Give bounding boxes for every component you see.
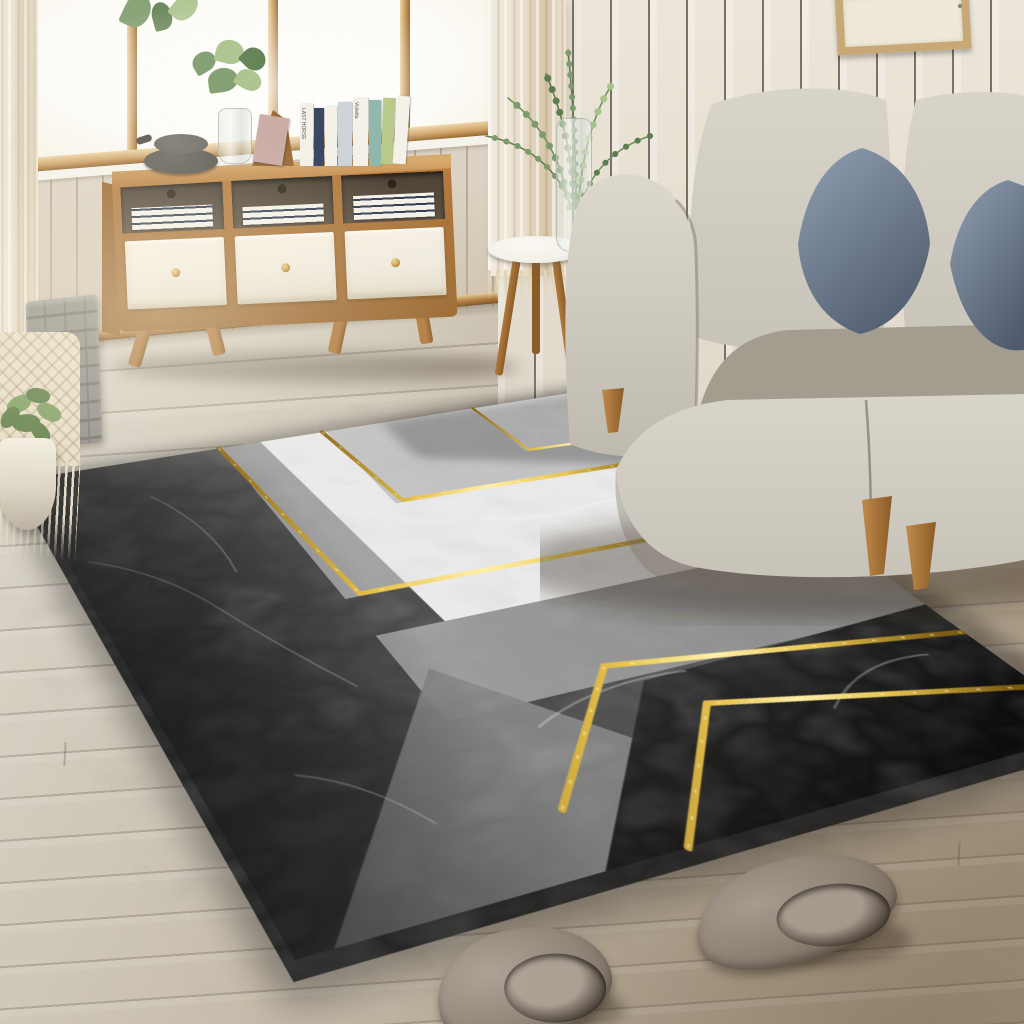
book-spine bbox=[393, 96, 411, 165]
sofa bbox=[540, 56, 1024, 626]
cubby bbox=[120, 181, 224, 234]
cabinet-drawers bbox=[125, 227, 447, 309]
basket-group bbox=[0, 292, 122, 582]
cable-hole bbox=[166, 189, 175, 198]
table-leg bbox=[495, 254, 522, 376]
drawer bbox=[345, 227, 447, 299]
hanging-leaf bbox=[167, 0, 203, 26]
bowl-handle bbox=[135, 134, 152, 146]
book-spine: LAST HORSE bbox=[300, 104, 313, 166]
book-spine-label: Violetta bbox=[353, 102, 358, 119]
book-stack bbox=[242, 203, 324, 225]
drawer bbox=[235, 232, 337, 304]
sideboard-cabinet: LAST HORSE Violetta bbox=[96, 84, 460, 384]
book-spine: Violetta bbox=[353, 98, 368, 166]
gray-bowl bbox=[154, 134, 208, 154]
cabinet-shadow bbox=[110, 352, 520, 382]
drawer-knob bbox=[171, 268, 180, 277]
cabinet-body bbox=[112, 165, 458, 332]
sofa-seat-cushion bbox=[616, 394, 1024, 577]
living-room-scene: LAST HORSE Violetta bbox=[0, 0, 1024, 1024]
book-spine-label: LAST HORSE bbox=[300, 108, 305, 140]
cable-hole bbox=[387, 179, 396, 188]
hanging-leaf bbox=[118, 0, 156, 32]
cubby bbox=[231, 176, 335, 229]
book-spine bbox=[314, 108, 324, 166]
book-spine bbox=[338, 102, 352, 166]
plant-pot bbox=[0, 438, 56, 530]
wall-knot bbox=[958, 4, 962, 8]
drawer-knob bbox=[390, 258, 399, 267]
drawer-knob bbox=[280, 263, 289, 272]
book-spine bbox=[325, 106, 337, 166]
glass-vase-cabinet bbox=[218, 108, 252, 164]
cubby bbox=[341, 171, 445, 224]
cable-hole bbox=[277, 184, 286, 193]
book-stack bbox=[131, 204, 213, 230]
book-spine bbox=[369, 100, 381, 166]
book-stack bbox=[352, 192, 434, 220]
table-leg bbox=[532, 252, 540, 354]
drawer bbox=[125, 237, 227, 309]
picture-frame bbox=[834, 0, 971, 55]
